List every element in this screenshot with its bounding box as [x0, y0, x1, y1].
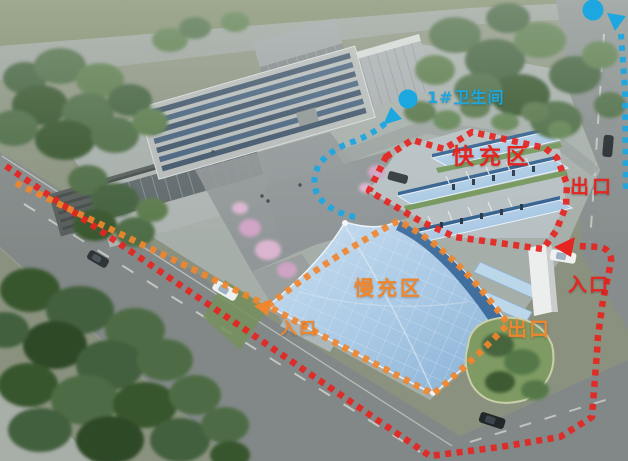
site-aerial-view: 1#卫生间 快充区 出口 入口 慢充区 入口 出口: [0, 0, 628, 461]
restroom-pin-icon: [399, 90, 418, 109]
atmospheric-haze: [0, 0, 628, 461]
fast-zone-label: 快充区: [452, 147, 533, 169]
slow-entrance-label: 入口: [280, 321, 318, 338]
slow-exit-label: 出口: [507, 319, 551, 339]
fast-exit-label: 出口: [570, 178, 614, 197]
fast-entrance-label: 入口: [568, 276, 610, 295]
slow-zone-label: 慢充区: [354, 278, 423, 298]
offsite-pin-icon: [583, 0, 604, 21]
site-render: [0, 0, 628, 461]
restroom-label: 1#卫生间: [427, 90, 505, 106]
